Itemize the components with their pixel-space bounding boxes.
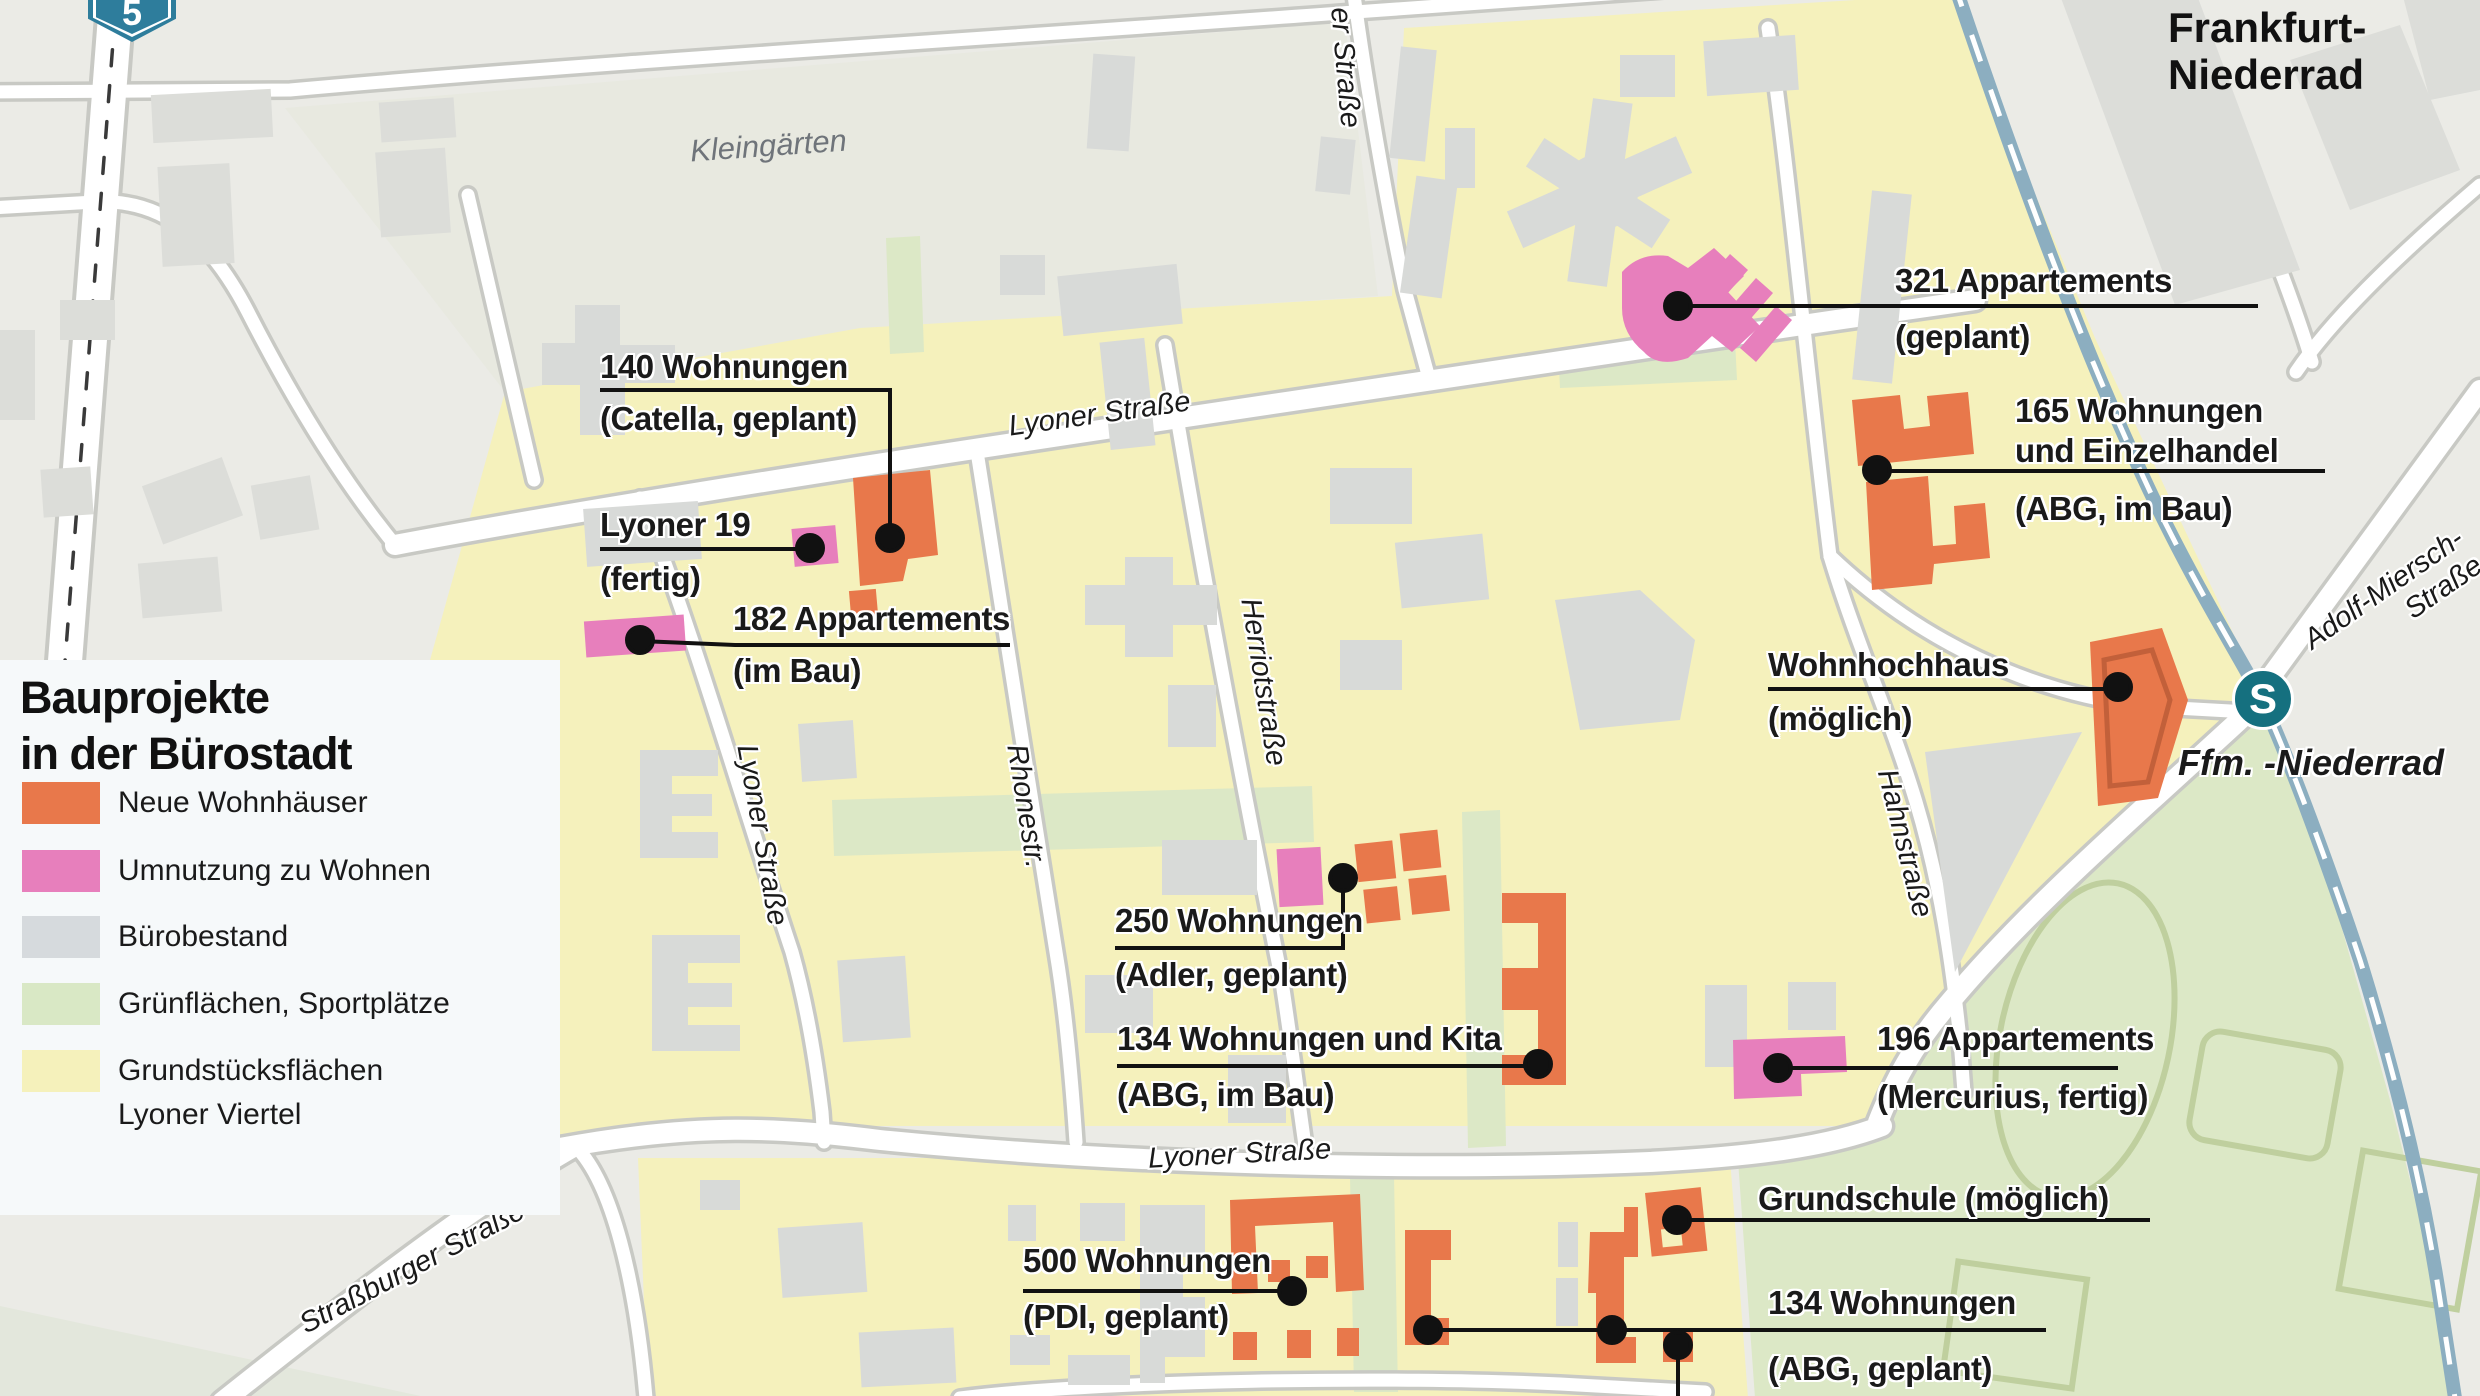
- legend-label-umnutzung: Umnutzung zu Wohnen: [118, 854, 431, 888]
- legend-title-line2: in der Bürostadt: [20, 728, 352, 780]
- annotation-grundschule-line1: Grundschule (möglich): [1758, 1180, 2109, 1218]
- legend-label-grundstuecksflaechen: Grundstücksflächen: [118, 1054, 383, 1088]
- legend-label-neue-wohnhaeuser: Neue Wohnhäuser: [118, 786, 368, 820]
- legend-title-line1: Bauprojekte: [20, 672, 269, 724]
- legend-swatch-umnutzung: [22, 850, 100, 892]
- sbahn-station-icon: S: [2232, 668, 2294, 730]
- annotation-app321-line2: (geplant): [1895, 318, 2030, 356]
- annotation-kita134-line2: (ABG, im Bau): [1117, 1076, 1334, 1114]
- annotation-abg165-line1: 165 Wohnungen: [2015, 392, 2263, 430]
- annotation-abg134-line2: (ABG, geplant): [1768, 1350, 1992, 1388]
- station-label-ffm-niederrad: Ffm. -Niederrad: [2178, 742, 2444, 784]
- annotation-app321-line1: 321 Appartements: [1895, 262, 2172, 300]
- legend-swatch-grundstuecksflaechen: [22, 1050, 100, 1092]
- ann otation-kita134-line1: 134 Wohnungen und Kita: [1117, 1020, 1501, 1058]
- annotation-pdi500-line2: (PDI, geplant): [1023, 1298, 1229, 1336]
- legend-swatch-neue-wohnhaeuser: [22, 782, 100, 824]
- legend-swatch-buerobestand: [22, 916, 100, 958]
- annotation-lyoner19-line1: Lyoner 19: [600, 506, 750, 544]
- annotation-wohnhochhaus-line1: Wohnhochhaus: [1768, 646, 2009, 684]
- annotation-catella-line2: (Catella, geplant): [600, 400, 857, 438]
- annotation-mercurius196-line2: (Mercurius, fertig): [1877, 1078, 2148, 1116]
- legend-label-buerobestand: Bürobestand: [118, 920, 288, 954]
- annotation-mercurius196-line1: 196 Appartements: [1877, 1020, 2154, 1058]
- legend-panel: Bauprojekte in der Bürostadt Neue Wohnhä…: [0, 660, 560, 1215]
- legend-label-lyoner-viertel: Lyoner Viertel: [118, 1098, 301, 1132]
- annotation-abg134-line1: 134 Wohnungen: [1768, 1284, 2016, 1322]
- annotation-abg165-line2: und Einzelhandel: [2015, 432, 2278, 470]
- map-infographic: Lyoner Straße Lyoner Straße Lyoner Straß…: [0, 0, 2480, 1396]
- legend-swatch-gruenflaechen: [22, 983, 100, 1025]
- annotation-lyoner19-line2: (fertig): [600, 560, 700, 598]
- annotation-app182-line1: 182 Appartements: [733, 600, 1010, 638]
- annotation-catella-line1: 140 Wohnungen: [600, 348, 848, 386]
- annotation-pdi500-line1: 500 Wohnungen: [1023, 1242, 1271, 1280]
- annotation-adler250-line2: (Adler, geplant): [1115, 956, 1347, 994]
- annotation-app182-line2: (im Bau): [733, 652, 861, 690]
- legend-label-gruenflaechen: Grünflächen, Sportplätze: [118, 987, 450, 1021]
- district-label-frankfurt-niederrad: Frankfurt- Niederrad: [2168, 4, 2366, 98]
- district-label-line1: Frankfurt-: [2168, 4, 2366, 51]
- annotation-wohnhochhaus-line2: (möglich): [1768, 700, 1912, 738]
- annotation-abg165-line3: (ABG, im Bau): [2015, 490, 2232, 528]
- district-label-line2: Niederrad: [2168, 51, 2366, 98]
- annotation-adler250-line1: 250 Wohnungen: [1115, 902, 1363, 940]
